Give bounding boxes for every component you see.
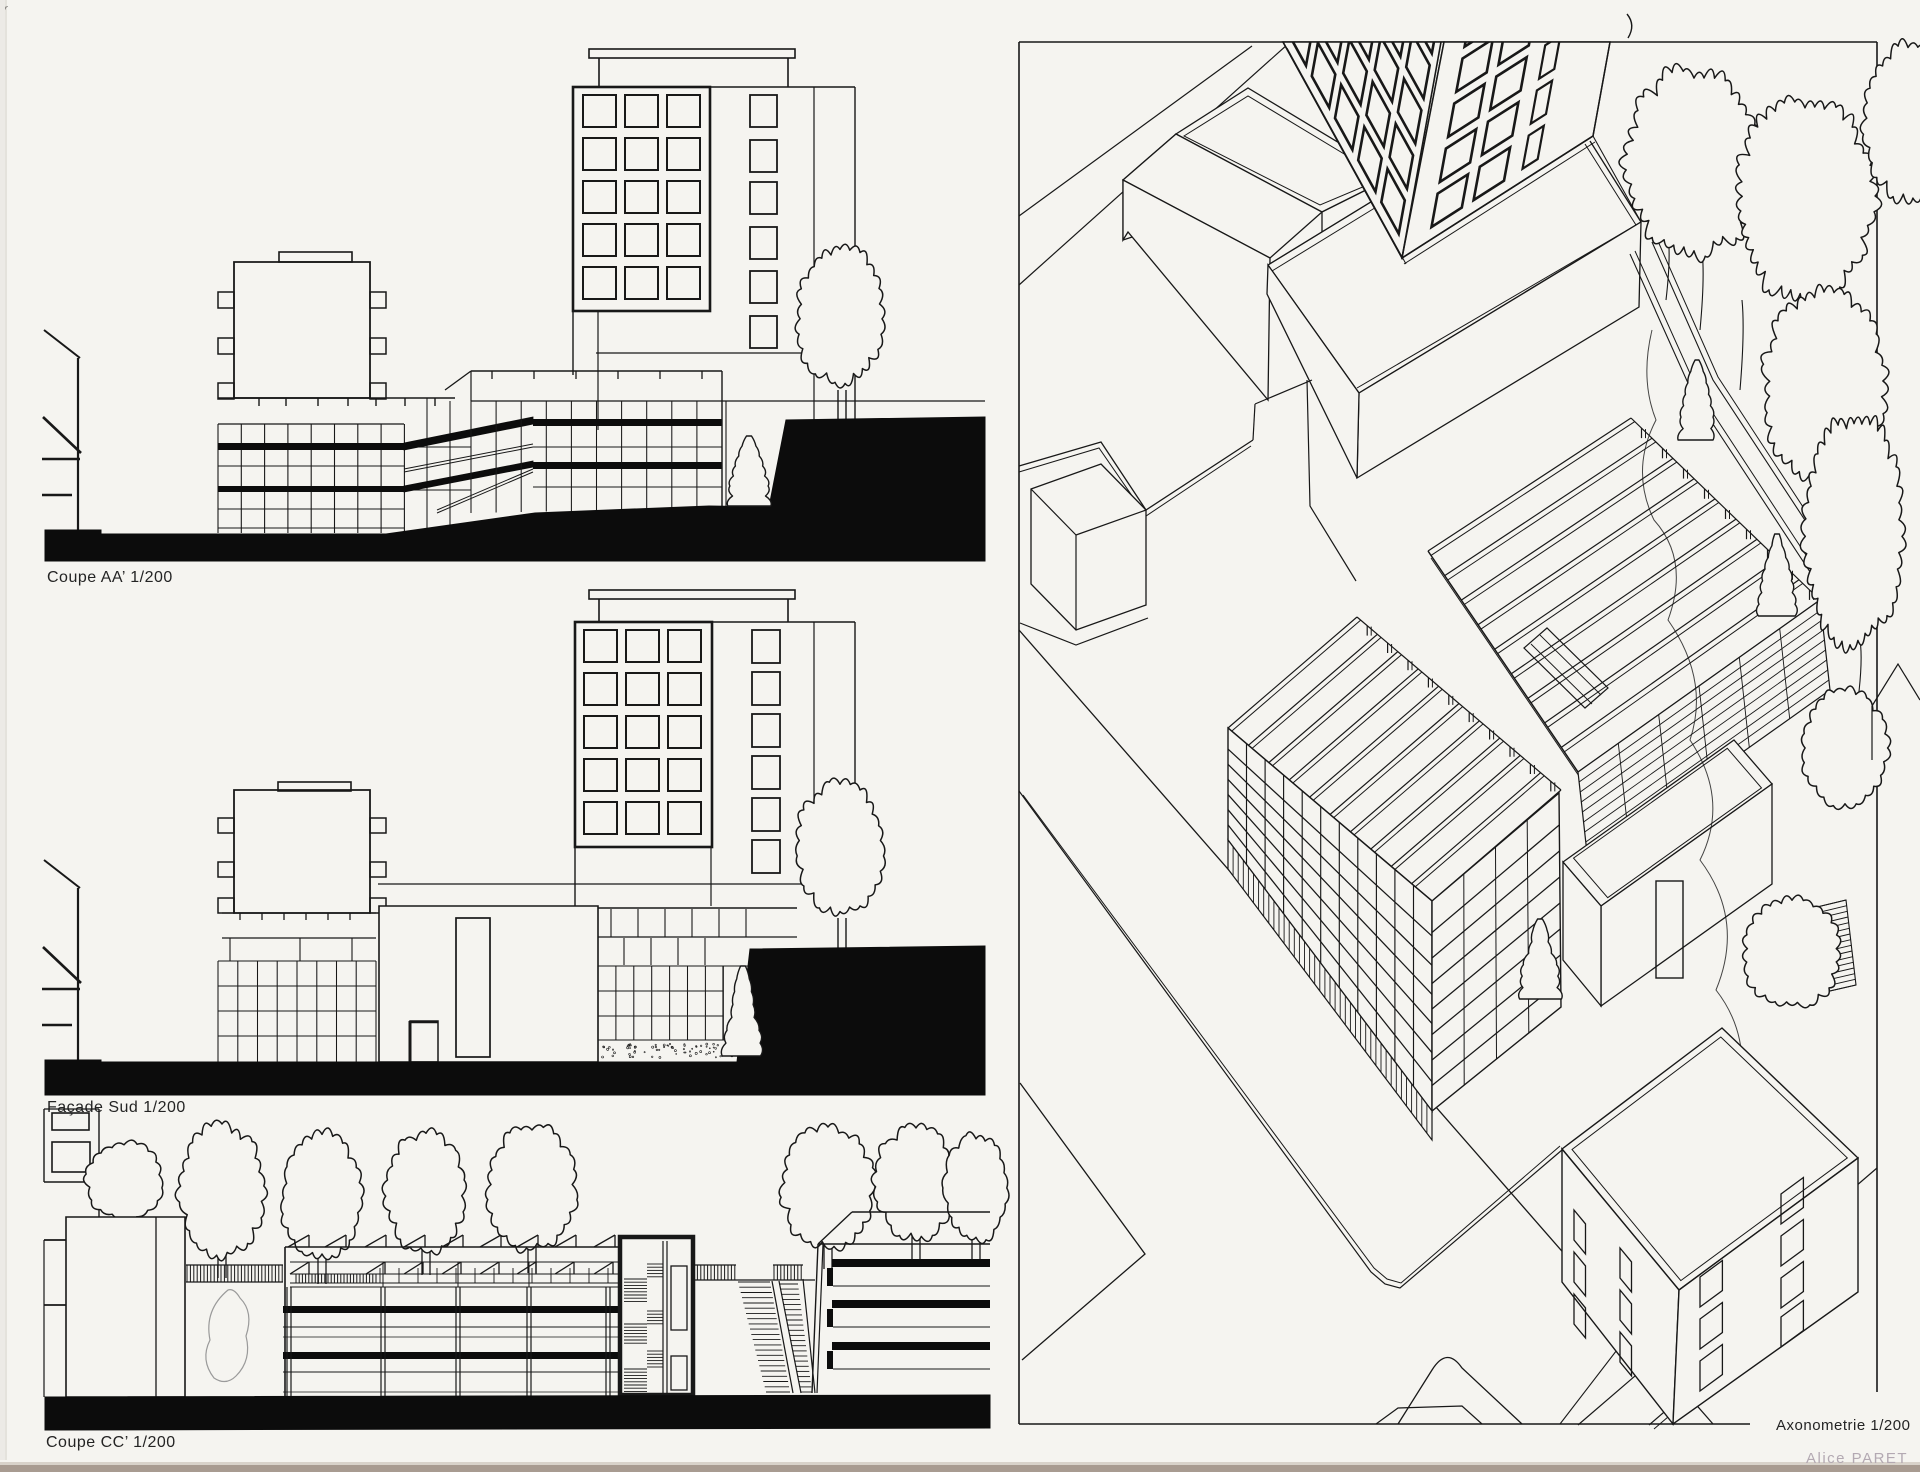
svg-text:Coupe AA’ 1/200: Coupe AA’ 1/200 xyxy=(47,569,173,586)
svg-text:Axonometrie 1/200: Axonometrie 1/200 xyxy=(1776,1417,1910,1434)
svg-text:Coupe CC’ 1/200: Coupe CC’ 1/200 xyxy=(46,1434,176,1451)
svg-text:Alice PARET: Alice PARET xyxy=(1806,1450,1908,1467)
